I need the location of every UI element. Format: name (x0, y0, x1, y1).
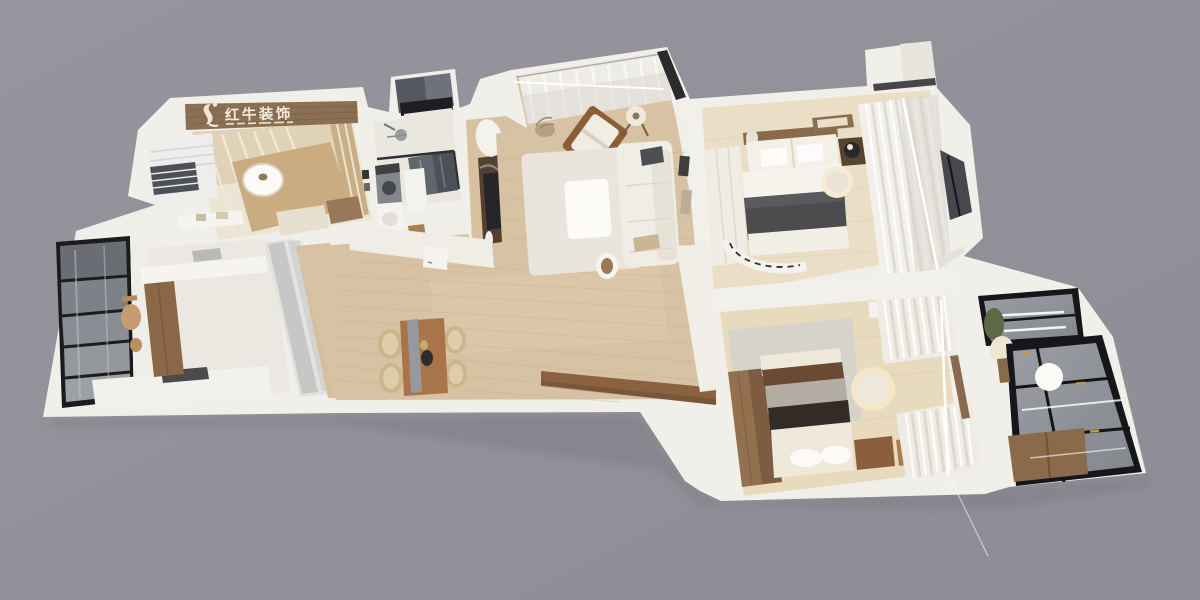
svg-text:红牛装饰: 红牛装饰 (225, 104, 293, 124)
